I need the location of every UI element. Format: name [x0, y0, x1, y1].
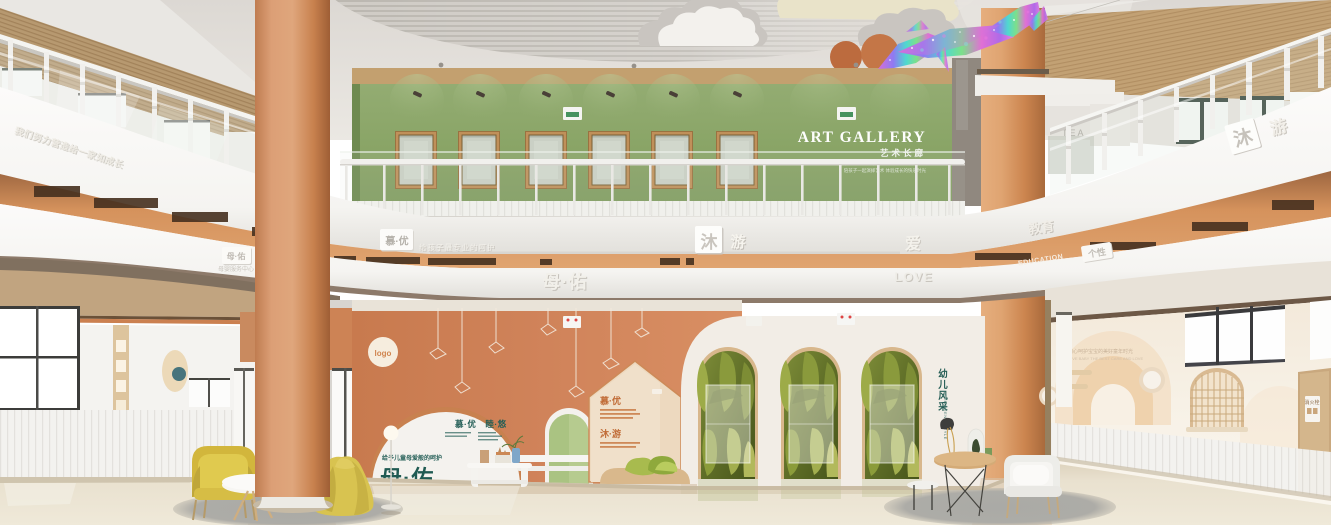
svg-text:慕·优 睦·悠: 慕·优 睦·悠 — [454, 419, 507, 429]
svg-text:爱: 爱 — [905, 234, 921, 253]
svg-text:儿: 儿 — [937, 380, 948, 391]
svg-text:母婴服务中心: 母婴服务中心 — [218, 265, 254, 273]
svg-text:沐: 沐 — [701, 233, 719, 252]
svg-text:ART GALLERY: ART GALLERY — [798, 129, 926, 146]
svg-text:慕·优: 慕·优 — [599, 395, 621, 406]
svg-text:慕·优: 慕·优 — [384, 235, 408, 248]
svg-text:母·佑: 母·佑 — [227, 251, 246, 261]
svg-text:沐·游: 沐·游 — [600, 428, 621, 439]
svg-text:logo: logo — [375, 349, 392, 358]
svg-text:LOVE: LOVE — [895, 270, 934, 284]
svg-text:游: 游 — [730, 233, 745, 251]
svg-text:GIVE BABY THE BEST CARE AND LO: GIVE BABY THE BEST CARE AND LOVE — [1068, 356, 1143, 361]
svg-text:幼: 幼 — [938, 368, 948, 380]
svg-text:给孩子最专业的呵护: 给孩子最专业的呵护 — [419, 242, 496, 252]
svg-text:用心呵护宝宝的美好童年时光: 用心呵护宝宝的美好童年时光 — [1068, 348, 1133, 355]
svg-text:消火栓: 消火栓 — [1304, 399, 1319, 406]
svg-text:母·佑: 母·佑 — [543, 271, 588, 292]
